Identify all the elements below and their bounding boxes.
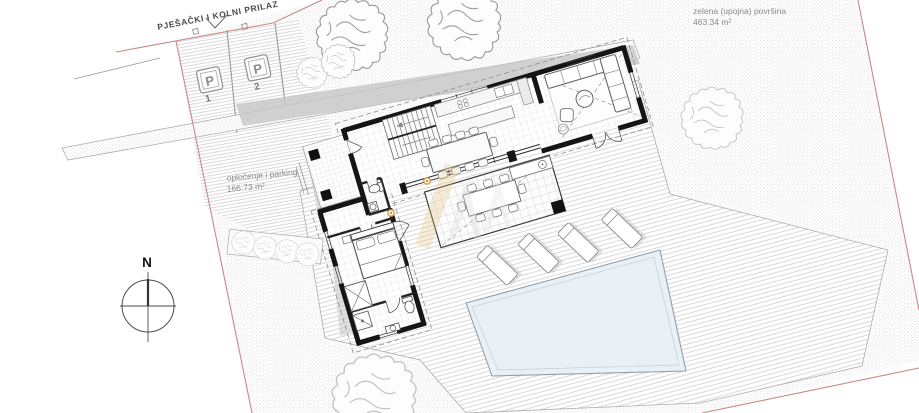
site-plan: P 1 P 2 PJEŠAČKI I KOLNI PRILAZ	[0, 0, 919, 413]
site-plan-canvas: P 1 P 2 PJEŠAČKI I KOLNI PRILAZ	[0, 0, 919, 413]
green-area-label: zelena (upojna) površina	[693, 6, 786, 16]
green-area-value: 463.34 m²	[693, 17, 731, 27]
parking-sign-2: P	[244, 54, 271, 81]
north-label: N	[142, 255, 152, 270]
parking-sign-1: P	[196, 66, 223, 93]
armchair	[560, 108, 573, 121]
